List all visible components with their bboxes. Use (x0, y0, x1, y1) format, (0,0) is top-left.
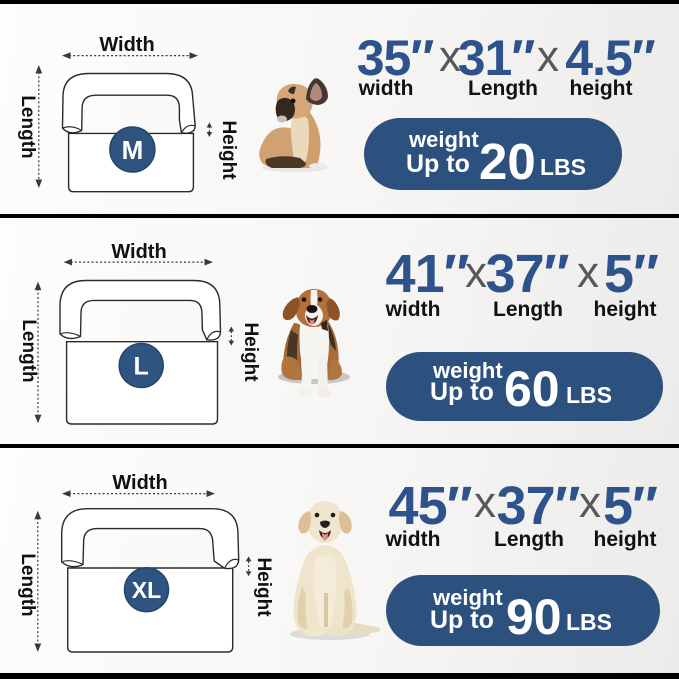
svg-text:XL: XL (132, 577, 161, 603)
svg-text:L: L (134, 353, 149, 381)
svg-text:M: M (122, 135, 144, 165)
